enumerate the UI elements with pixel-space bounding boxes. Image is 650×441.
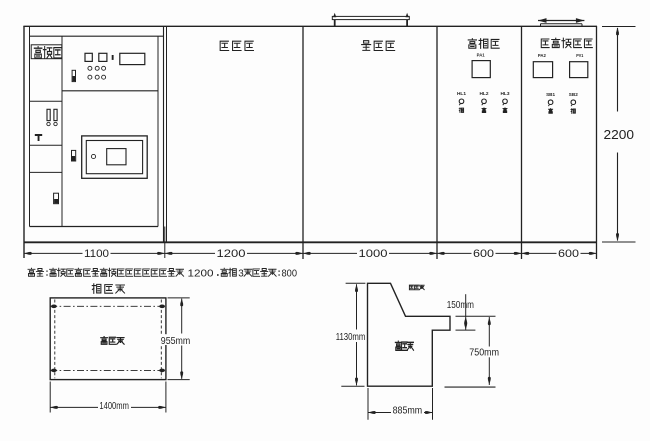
svg-text:PA1: PA1 (477, 52, 486, 57)
svg-text:SB2: SB2 (569, 92, 579, 97)
svg-text:SB1: SB1 (546, 92, 556, 97)
svg-text:1000: 1000 (359, 248, 388, 260)
svg-text:800: 800 (282, 267, 298, 279)
svg-text:HL3: HL3 (501, 91, 511, 96)
svg-text:PA2: PA2 (538, 53, 547, 58)
svg-text:885mm: 885mm (393, 404, 423, 416)
svg-text:955mm: 955mm (161, 335, 191, 347)
svg-text:HL2: HL2 (480, 91, 490, 96)
svg-text:HL1: HL1 (457, 91, 467, 96)
svg-text:2200: 2200 (604, 127, 635, 142)
svg-text:600: 600 (473, 248, 494, 260)
svg-text:1100: 1100 (84, 248, 109, 260)
svg-text:1200: 1200 (217, 248, 246, 260)
svg-text:750mm: 750mm (469, 347, 499, 359)
svg-text:1400mm: 1400mm (99, 400, 129, 412)
svg-text:1130mm: 1130mm (336, 331, 366, 343)
svg-text:150mm: 150mm (447, 299, 474, 311)
svg-text:1200: 1200 (188, 267, 214, 279)
svg-text:600: 600 (558, 248, 579, 260)
svg-text:PV1: PV1 (576, 53, 584, 58)
svg-text:3: 3 (238, 267, 244, 279)
